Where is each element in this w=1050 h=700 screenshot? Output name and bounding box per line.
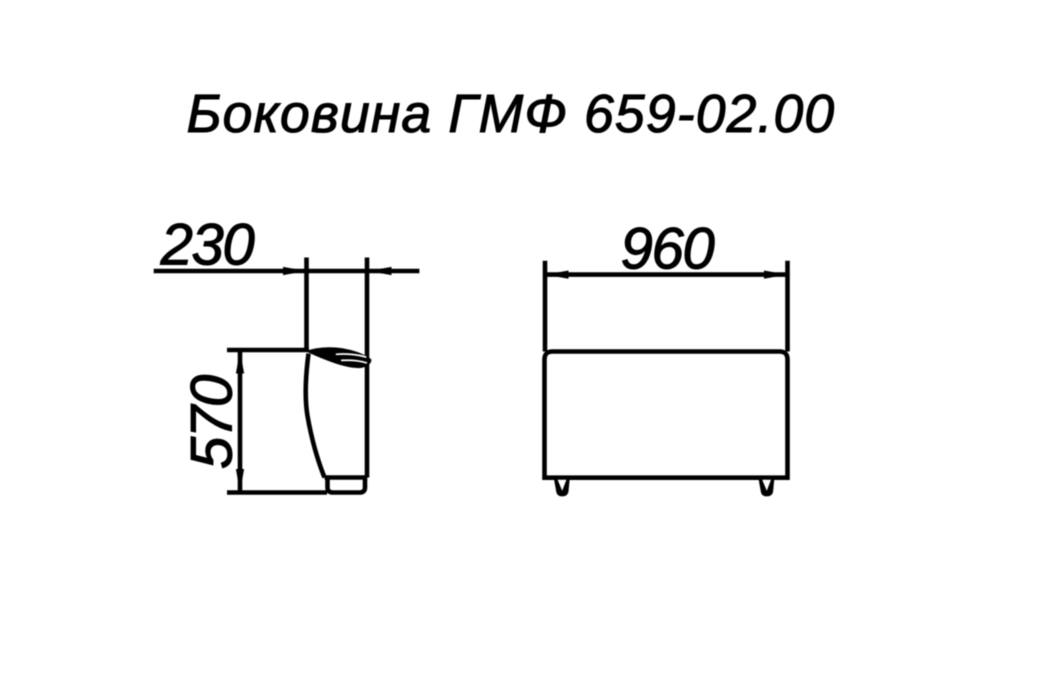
svg-text:570: 570 (180, 375, 245, 469)
svg-text:Боковина ГМФ 659-02.00: Боковина ГМФ 659-02.00 (187, 85, 836, 144)
svg-text:230: 230 (160, 213, 255, 278)
svg-text:960: 960 (621, 216, 715, 281)
